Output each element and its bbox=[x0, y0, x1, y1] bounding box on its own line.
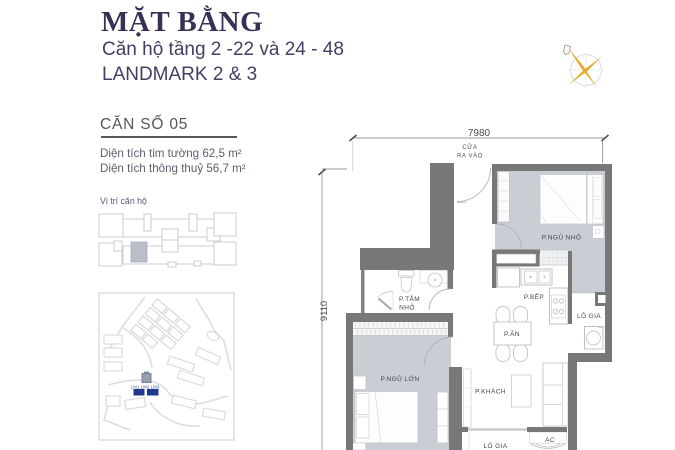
svg-text:P.ĂN: P.ĂN bbox=[504, 329, 520, 338]
svg-text:P.NGỦ NHỎ: P.NGỦ NHỎ bbox=[542, 233, 582, 242]
svg-text:P.NGỦ LỚN: P.NGỦ LỚN bbox=[380, 374, 419, 383]
svg-text:LM1 LM2 LM3: LM1 LM2 LM3 bbox=[131, 385, 160, 390]
svg-text:RA VÀO: RA VÀO bbox=[457, 153, 483, 160]
svg-text:AC: AC bbox=[545, 437, 555, 444]
svg-text:P.KHÁCH: P.KHÁCH bbox=[475, 387, 506, 396]
svg-text:CỬA: CỬA bbox=[462, 144, 477, 151]
svg-text:LÔ GIA: LÔ GIA bbox=[577, 311, 601, 320]
svg-text:P.BẾP: P.BẾP bbox=[524, 291, 544, 301]
svg-text:9110: 9110 bbox=[319, 301, 330, 321]
svg-text:LÔ GIA: LÔ GIA bbox=[483, 441, 507, 450]
svg-text:NHỎ: NHỎ bbox=[399, 303, 415, 312]
svg-text:7980: 7980 bbox=[468, 128, 491, 139]
svg-text:P.TẮM: P.TẮM bbox=[399, 294, 420, 303]
